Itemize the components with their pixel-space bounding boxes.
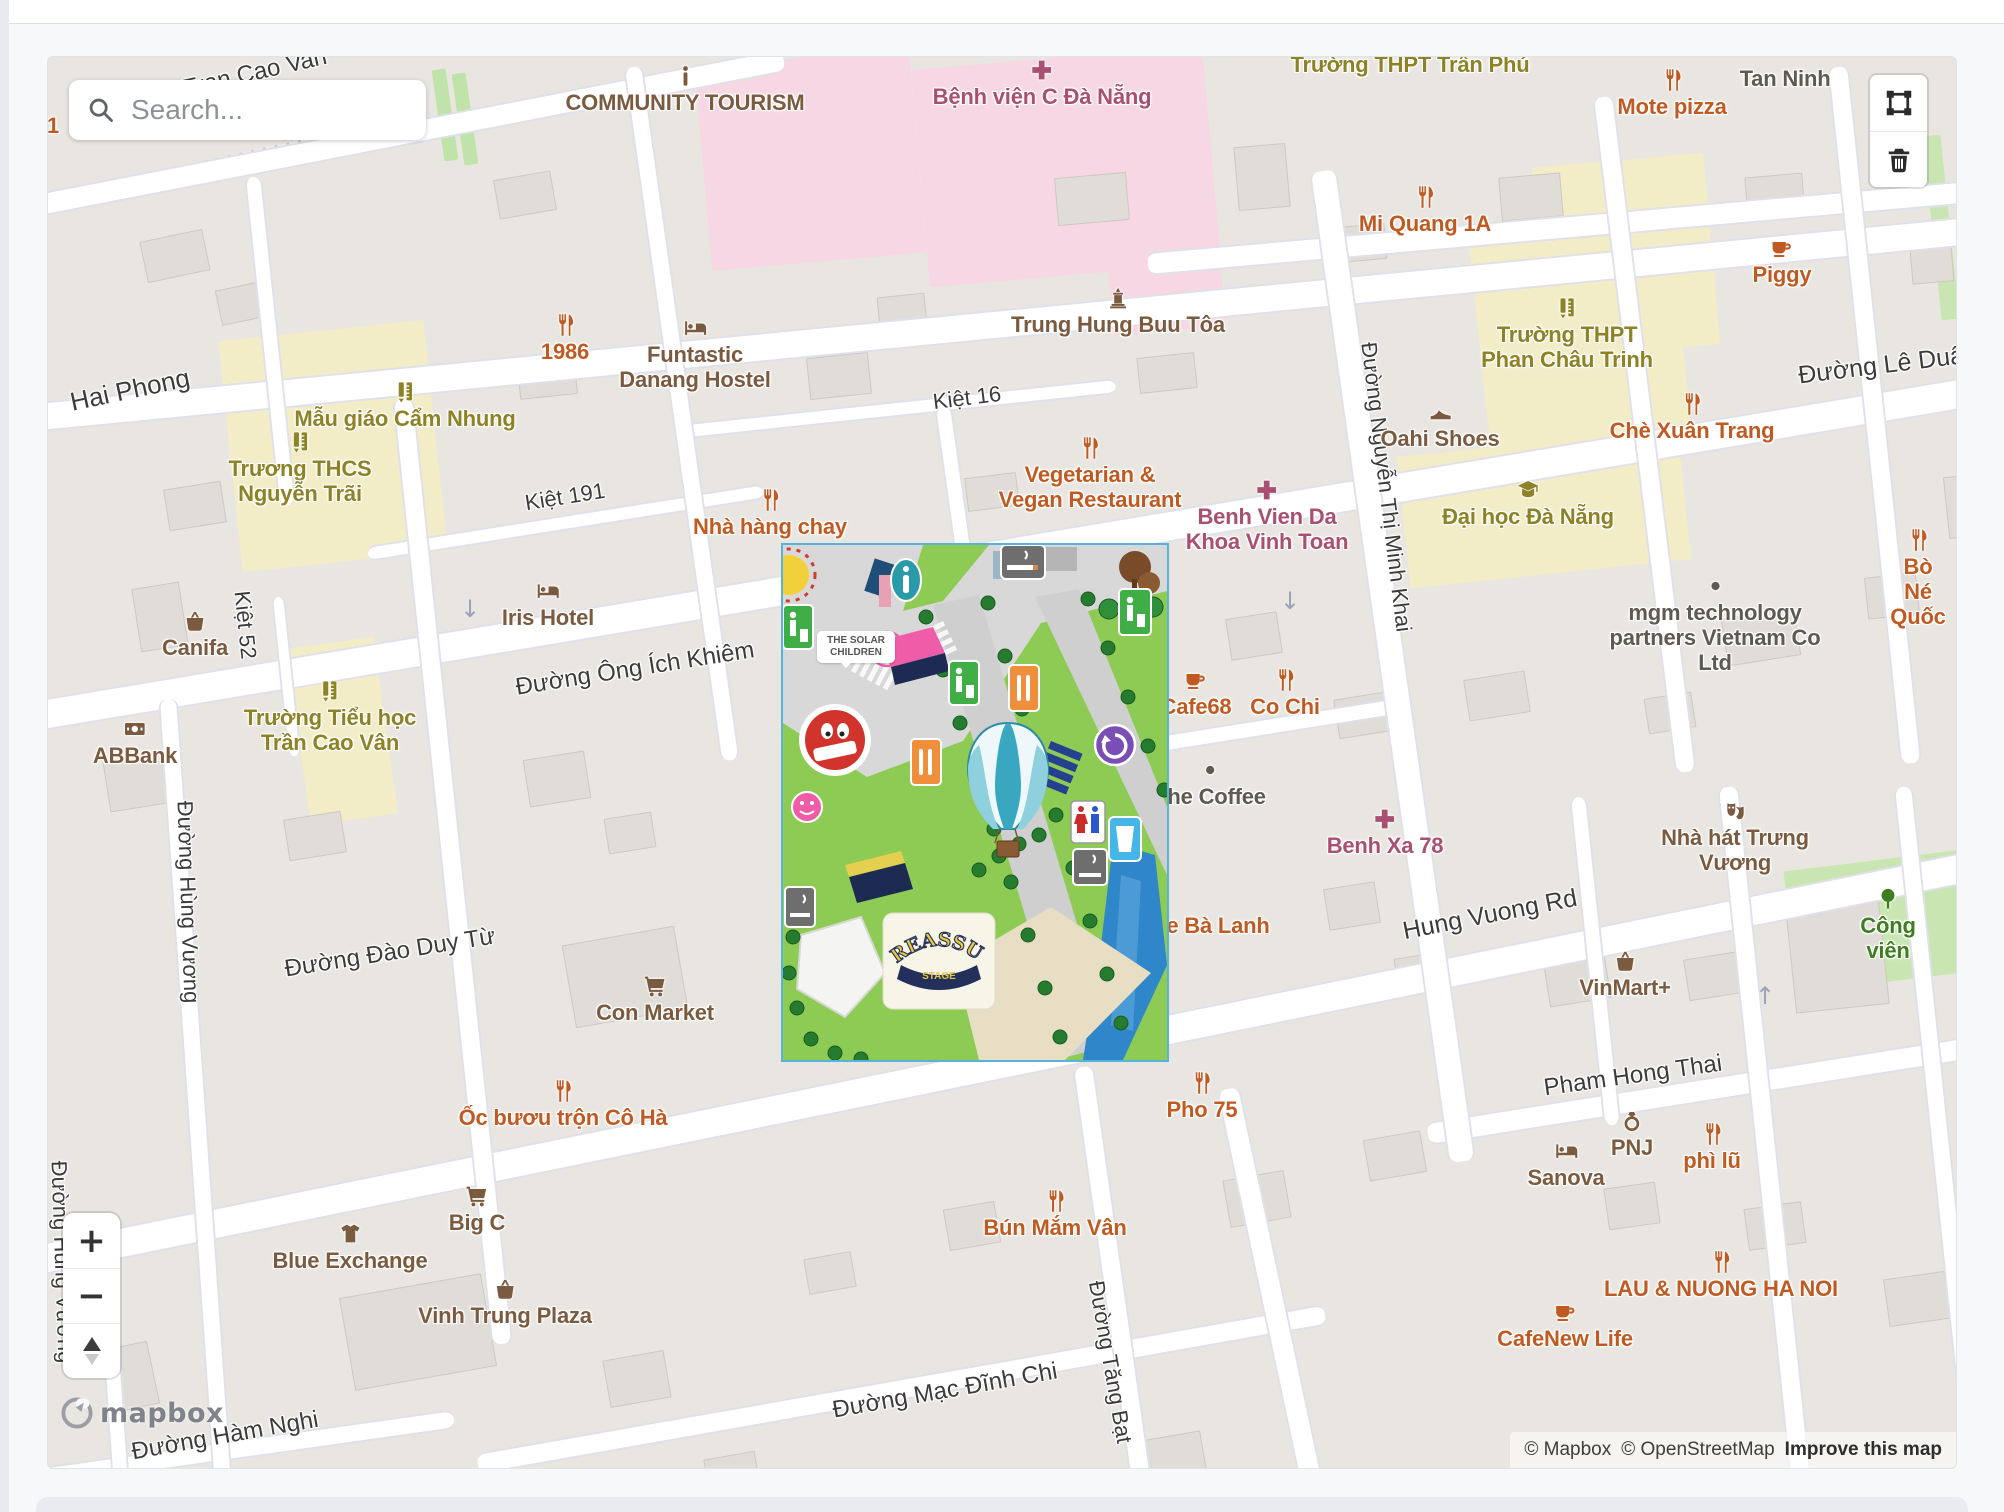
rest-icon	[757, 487, 783, 513]
poi-sanova[interactable]: Sanova	[1527, 1138, 1604, 1190]
school-icon	[287, 429, 313, 455]
osm-attribution-link[interactable]: © OpenStreetMap	[1621, 1439, 1774, 1461]
poi-trung-hung-buu-t-a[interactable]: Trung Hung Buu Tôa	[1011, 285, 1225, 337]
poi-mote-pizza[interactable]: Mote pizza	[1617, 67, 1726, 119]
tree-icon	[1875, 886, 1901, 912]
poi-label: VinMart+	[1579, 975, 1671, 1000]
top-chrome-bar	[0, 0, 2004, 24]
poi-label: Trường THPT Phan Châu Trinh	[1481, 322, 1653, 372]
poi-iris-hotel[interactable]: Iris Hotel	[502, 578, 594, 630]
poi-label: e Bà Lanh	[1166, 913, 1269, 938]
draw-control-group	[1870, 75, 1927, 187]
poi-vinh-trung-plaza[interactable]: Vinh Trung Plaza	[418, 1276, 592, 1328]
poi-label: Bệnh viện C Đà Nẵng	[933, 84, 1152, 109]
poi-label: Piggy	[1753, 262, 1812, 287]
poi-blue-exchange[interactable]: Blue Exchange	[272, 1221, 427, 1273]
poi-big-c[interactable]: Big C	[449, 1183, 505, 1235]
rest-icon	[1708, 1249, 1734, 1275]
rest-icon	[1659, 67, 1685, 93]
improve-map-link[interactable]: Improve this map	[1785, 1439, 1942, 1461]
poi-co-chi[interactable]: Co Chi	[1250, 667, 1320, 719]
stage-label-text: STAGE	[922, 971, 956, 982]
rest-icon	[1412, 184, 1438, 210]
reassure-stage-sign: REASSURE STAGE	[883, 913, 995, 1009]
poi-funtastic-danang-hostel[interactable]: Funtastic Danang Hostel	[619, 315, 770, 392]
poi-e-b-lanh[interactable]: e Bà Lanh	[1166, 912, 1269, 938]
poi-label: Big C	[449, 1210, 505, 1235]
cafe-icon	[1183, 667, 1209, 693]
dot-icon	[1197, 757, 1223, 783]
poi-label: 1	[48, 113, 59, 138]
poi-i-h-c-n-ng[interactable]: Đại học Đà Nẵng	[1442, 477, 1614, 529]
poi-label: Sanova	[1527, 1165, 1604, 1190]
poi-benh-xa-78[interactable]: Benh Xa 78	[1327, 806, 1444, 858]
poi-piggy[interactable]: Piggy	[1753, 235, 1812, 287]
ring-icon	[1619, 1108, 1645, 1134]
rest-icon	[1699, 1121, 1725, 1147]
search-box[interactable]	[69, 80, 426, 140]
school-icon	[1554, 295, 1580, 321]
poi-b-n-m-m-v-n[interactable]: Bún Mắm Vân	[983, 1188, 1126, 1240]
rest-icon	[1077, 435, 1103, 461]
poi-label: Benh Vien Da Khoa Vinh Toan	[1186, 504, 1349, 554]
mapbox-logo[interactable]: mapbox	[60, 1396, 224, 1430]
poi-label: 1986	[541, 339, 589, 364]
theater-icon	[1722, 798, 1748, 824]
dot-icon	[1702, 573, 1728, 599]
solar-children-booth-label: THE SOLAR CHILDREN	[817, 631, 895, 663]
left-chrome-strip	[0, 0, 9, 1512]
poi-ph-l[interactable]: phì lũ	[1683, 1121, 1740, 1173]
stage-name-text: REASSURE	[883, 913, 987, 967]
zoom-control-group: + −	[63, 1213, 120, 1378]
map-canvas[interactable]: ↓↓↑ Tran Cao VanHai PhongKiệt 16Kiệt 191…	[48, 57, 1956, 1468]
mapbox-logo-icon	[60, 1396, 94, 1430]
grad-icon	[1515, 477, 1541, 503]
poi-label: Mote pizza	[1617, 94, 1726, 119]
cafe-icon	[1769, 235, 1795, 261]
cart-icon	[464, 1183, 490, 1209]
compass-button[interactable]	[63, 1323, 120, 1378]
poi-1986[interactable]: 1986	[541, 312, 589, 364]
poi-label: Funtastic Danang Hostel	[619, 342, 770, 392]
poi-m-u-gi-o-c-m-nhung[interactable]: Mẫu giáo Cẩm Nhung	[294, 379, 515, 431]
search-icon	[87, 96, 115, 124]
cross-icon	[1254, 477, 1280, 503]
poi-nh-h-ng-chay[interactable]: Nhà hàng chay	[693, 487, 847, 539]
poi-label: Chè Xuân Trang	[1610, 418, 1775, 443]
poi-pho-75[interactable]: Pho 75	[1167, 1070, 1238, 1122]
basket-icon	[182, 608, 208, 634]
poi-label: Con Market	[596, 1000, 714, 1025]
poi-label: The Coffee	[1154, 784, 1266, 809]
rest-icon	[1272, 667, 1298, 693]
poi-label: LAU & NUONG HA NOI	[1604, 1276, 1838, 1301]
poi-label: Vegetarian & Vegan Restaurant	[999, 462, 1182, 512]
search-input[interactable]	[129, 93, 408, 127]
poi-label: Co Chi	[1250, 694, 1320, 719]
poi-label: Ốc bươu trộn Cô Hà	[459, 1105, 668, 1130]
poi-label: Benh Xa 78	[1327, 833, 1444, 858]
rest-icon	[1189, 1070, 1215, 1096]
poi-c-b-u-tr-n-c-h[interactable]: Ốc bươu trộn Cô Hà	[459, 1078, 668, 1130]
rest-icon	[1042, 1188, 1068, 1214]
poi-label: Đại học Đà Nẵng	[1442, 504, 1614, 529]
cross-icon	[1372, 806, 1398, 832]
draw-polygon-button[interactable]	[1870, 75, 1927, 131]
poi-label: mgm technology partners Vietnam Co Ltd	[1595, 600, 1836, 675]
poi-label: Canifa	[162, 635, 228, 660]
cafe-icon	[1552, 1299, 1578, 1325]
basket-icon	[1612, 948, 1638, 974]
basket-icon	[492, 1276, 518, 1302]
one-way-arrow-icon: ↓	[1280, 587, 1300, 615]
poi-label: Iris Hotel	[502, 605, 594, 630]
poi-label: Mẫu giáo Cẩm Nhung	[294, 406, 515, 431]
poi-b-nh-vi-n-c-n-ng[interactable]: Bệnh viện C Đà Nẵng	[933, 57, 1152, 109]
poi-community-tourism[interactable]: COMMUNITY TOURISM	[565, 63, 804, 115]
poi-tr-ng-thpt-phan-ch-u-trinh[interactable]: Trường THPT Phan Châu Trinh	[1481, 295, 1653, 372]
trash-icon	[1884, 145, 1914, 175]
one-way-arrow-icon: ↓	[460, 595, 480, 623]
event-map-overlay[interactable]: THE SOLAR CHILDREN REASSURE STAGE	[781, 543, 1169, 1062]
poi-label: Trường Tiểu học Trần Cao Vân	[244, 705, 416, 755]
poi-b-n-qu-c[interactable]: Bò Né Quốc	[1890, 527, 1945, 629]
poi-mi-quang-1a[interactable]: Mi Quang 1A	[1359, 184, 1491, 236]
rest-icon	[552, 312, 578, 338]
poi-tr-ng-thcs-nguy-n-tr-i[interactable]: Trương THCS Nguyễn Trãi	[228, 429, 371, 506]
bed-icon	[682, 315, 708, 341]
zoom-in-button[interactable]: +	[63, 1213, 120, 1268]
money-icon	[122, 716, 148, 742]
poi-label: CafeNew Life	[1497, 1326, 1633, 1351]
mapbox-wordmark: mapbox	[100, 1398, 224, 1429]
compass-icon	[83, 1337, 101, 1365]
poi-lau-nuong-ha-noi[interactable]: LAU & NUONG HA NOI	[1604, 1249, 1838, 1301]
poi-tr-ng-thpt-tr-n-ph[interactable]: Trường THPT Trần Phú	[1290, 57, 1529, 77]
poi-label: Pho 75	[1167, 1097, 1238, 1122]
delete-drawing-button[interactable]	[1870, 131, 1927, 187]
poi-cafe68[interactable]: Cafe68	[1161, 667, 1232, 719]
poi-benh-vien-da-khoa-vinh-toan[interactable]: Benh Vien Da Khoa Vinh Toan	[1186, 477, 1349, 554]
poi-label: phì lũ	[1683, 1148, 1740, 1173]
poi-label: Trương THCS Nguyễn Trãi	[228, 456, 371, 506]
rest-icon	[550, 1078, 576, 1104]
polygon-icon	[1884, 88, 1914, 118]
poi-mgm-technology-partners-vietnam-co-ltd[interactable]: mgm technology partners Vietnam Co Ltd	[1595, 573, 1836, 675]
poi-canifa[interactable]: Canifa	[162, 608, 228, 660]
poi-label: Bún Mắm Vân	[983, 1215, 1126, 1240]
poi-vegetarian-vegan-restaurant[interactable]: Vegetarian & Vegan Restaurant	[999, 435, 1182, 512]
poi-the-coffee[interactable]: The Coffee	[1154, 757, 1266, 809]
poi-label: Nhà hàng chay	[693, 514, 847, 539]
temple-icon	[1105, 285, 1131, 311]
info-icon	[672, 63, 698, 89]
rest-icon	[1679, 391, 1705, 417]
poi-label: Tan Ninh	[1740, 66, 1831, 91]
poi-label: Nhà hát Trưng Vương	[1625, 825, 1846, 875]
shirt-icon	[337, 1221, 363, 1247]
shoe-icon	[1427, 399, 1453, 425]
cross-icon	[1029, 57, 1055, 83]
poi-ch-xu-n-trang[interactable]: Chè Xuân Trang	[1610, 391, 1775, 443]
school-icon	[317, 678, 343, 704]
poi-pnj[interactable]: PNJ	[1611, 1108, 1653, 1160]
poi-con-market[interactable]: Con Market	[596, 973, 714, 1025]
poi-label: PNJ	[1611, 1135, 1653, 1160]
poi-vinmart[interactable]: VinMart+	[1579, 948, 1671, 1000]
poi-label: Bò Né Quốc	[1890, 554, 1945, 629]
bed-icon	[535, 578, 561, 604]
poi-cafenew-life[interactable]: CafeNew Life	[1497, 1299, 1633, 1351]
poi-oahi-shoes[interactable]: Oahi Shoes	[1380, 399, 1499, 451]
mapbox-attribution-link[interactable]: © Mapbox	[1524, 1439, 1611, 1461]
poi-tan-ninh[interactable]: Tan Ninh	[1740, 65, 1831, 91]
cart-icon	[642, 973, 668, 999]
zoom-out-button[interactable]: −	[63, 1268, 120, 1323]
school-icon	[392, 379, 418, 405]
poi-nh-h-t-tr-ng-v-ng[interactable]: Nhà hát Trưng Vương	[1625, 798, 1846, 875]
poi-tr-ng-ti-u-h-c-tr-n-cao-v-n[interactable]: Trường Tiểu học Trần Cao Vân	[244, 678, 416, 755]
svg-text:REASSURE: REASSURE	[883, 913, 987, 967]
attribution-bar: © Mapbox © OpenStreetMap Improve this ma…	[1510, 1432, 1956, 1468]
one-way-arrow-icon: ↑	[1755, 982, 1775, 1010]
rest-icon	[1905, 527, 1931, 553]
poi-label: Cafe68	[1161, 694, 1232, 719]
poi-abbank[interactable]: ABBank	[93, 716, 177, 768]
poi-1[interactable]: 1	[48, 112, 59, 138]
poi-label: ABBank	[93, 743, 177, 768]
poi-label: Blue Exchange	[272, 1248, 427, 1273]
poi-label: COMMUNITY TOURISM	[565, 90, 804, 115]
bed-icon	[1553, 1138, 1579, 1164]
bottom-panel-edge	[36, 1497, 1968, 1512]
poi-label: Oahi Shoes	[1380, 426, 1499, 451]
poi-label: Vinh Trung Plaza	[418, 1303, 592, 1328]
poi-label: Mi Quang 1A	[1359, 211, 1491, 236]
poi-label: Trường THPT Trần Phú	[1290, 57, 1529, 77]
poi-label: Trung Hung Buu Tôa	[1011, 312, 1225, 337]
poi-c-ng-vi-n[interactable]: Công viên	[1854, 886, 1922, 963]
poi-label: Công viên	[1854, 913, 1922, 963]
